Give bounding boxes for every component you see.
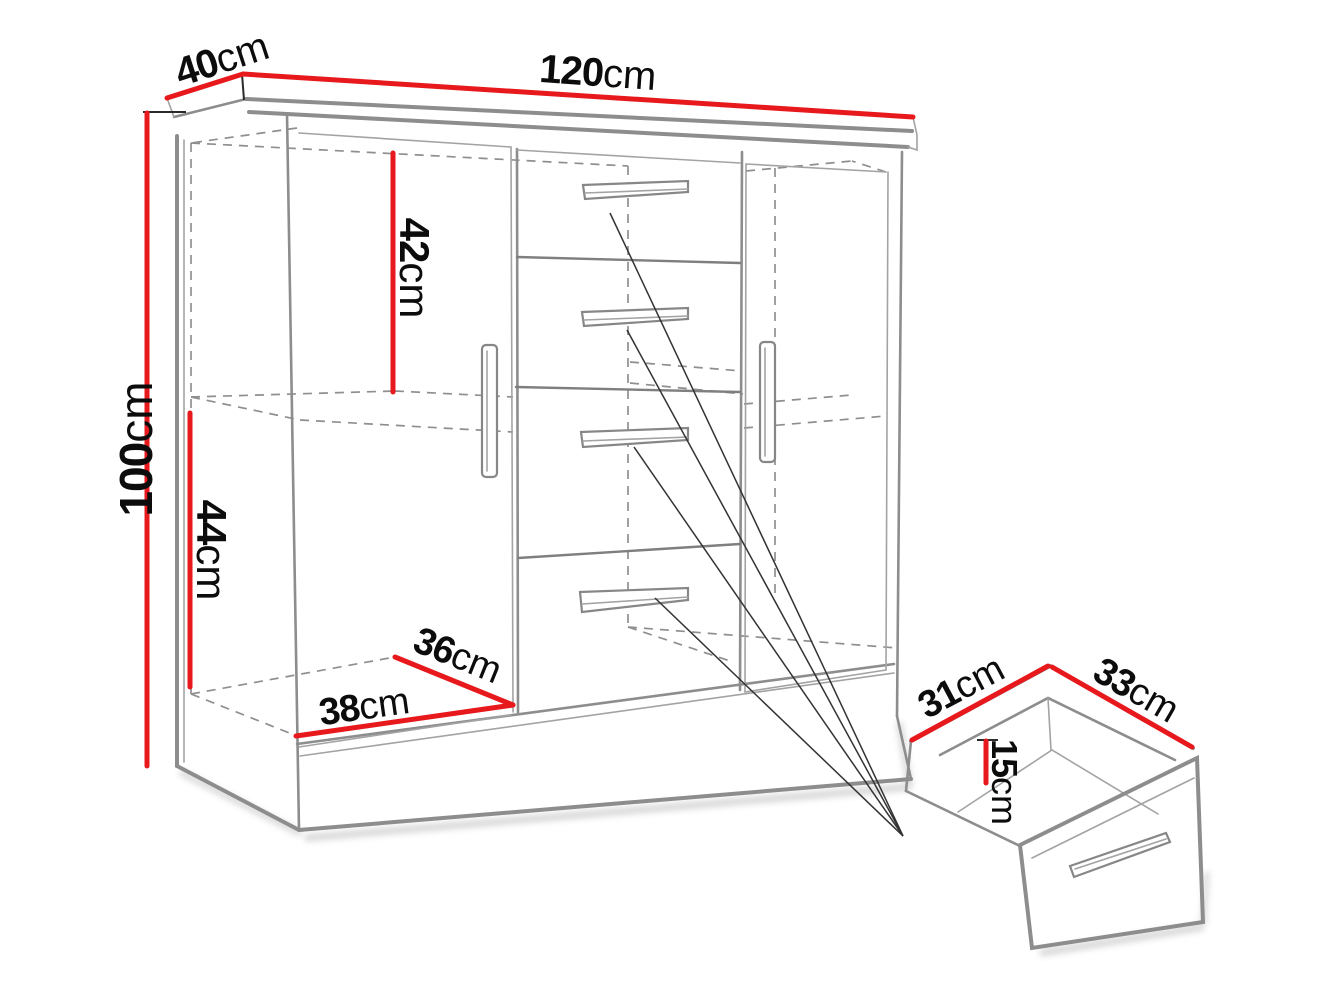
callout-line [634,447,903,836]
top-slab-end [167,98,174,117]
cabinet-right-edge [897,152,902,716]
drawer-front-panel-line [1032,778,1194,858]
cabinet-front-left-edge [287,114,299,830]
drawer-width-dimension-label: 33cm [1086,650,1186,732]
drop-shadows [180,722,1207,953]
drawer-inner-corner [1048,698,1051,750]
depth-dimension-label: 40cm [170,24,275,95]
drawer-bank-top-edge [517,150,740,163]
top-slab-edge [246,99,912,131]
cabinet-bottom-left-edge [177,766,299,830]
drawer-bank-right-edge [740,152,742,690]
right-door-handle [760,342,775,462]
plinth-bottom-edge [299,779,911,830]
drawer-height-dimension-label: 15cm [984,739,1025,825]
left-door-edge [511,147,513,712]
shelf-hidden-edge [191,397,300,420]
cabinet-outline [167,74,917,830]
top-slab-end [908,117,917,150]
drawer-detail-handle-line [1075,839,1166,869]
drawer-bank-left-edge [517,149,518,712]
drawer-shadow [1040,927,1203,953]
upper-compartment-dimension-label: 42cm [391,218,438,319]
interior-width-dimension-label: 38cm [316,680,412,734]
furniture-dimension-diagram: 40cm 120cm 100cm 42cm 44cm 36cm 38cm 31c… [0,0,1334,1000]
right-door-edge [886,172,888,670]
left-door-top-edge [299,133,511,147]
dimension-labels: 40cm 120cm 100cm 42cm 44cm 36cm 38cm 31c… [110,24,1186,825]
top-slab-corner [242,74,244,100]
left-door-handle [482,345,497,477]
hidden-edge [191,128,297,143]
cabinet-shadow [305,787,910,838]
height-dimension-label: 100cm [110,381,162,516]
lower-compartment-dimension-label: 44cm [188,500,235,601]
hidden-edge [628,627,897,648]
hidden-edge [191,694,297,736]
diagram-canvas: 40cm 120cm 100cm 42cm 44cm 36cm 38cm 31c… [0,0,1334,1000]
callout-line [610,213,903,836]
hidden-edge [191,143,628,166]
top-slab-edge [249,112,908,147]
width-dimension-label: 120cm [538,47,658,99]
right-door-edge [745,164,746,692]
drawer-callout-lines [610,213,903,836]
cabinet-shadow [180,772,301,834]
top-slab-edge [174,99,246,117]
